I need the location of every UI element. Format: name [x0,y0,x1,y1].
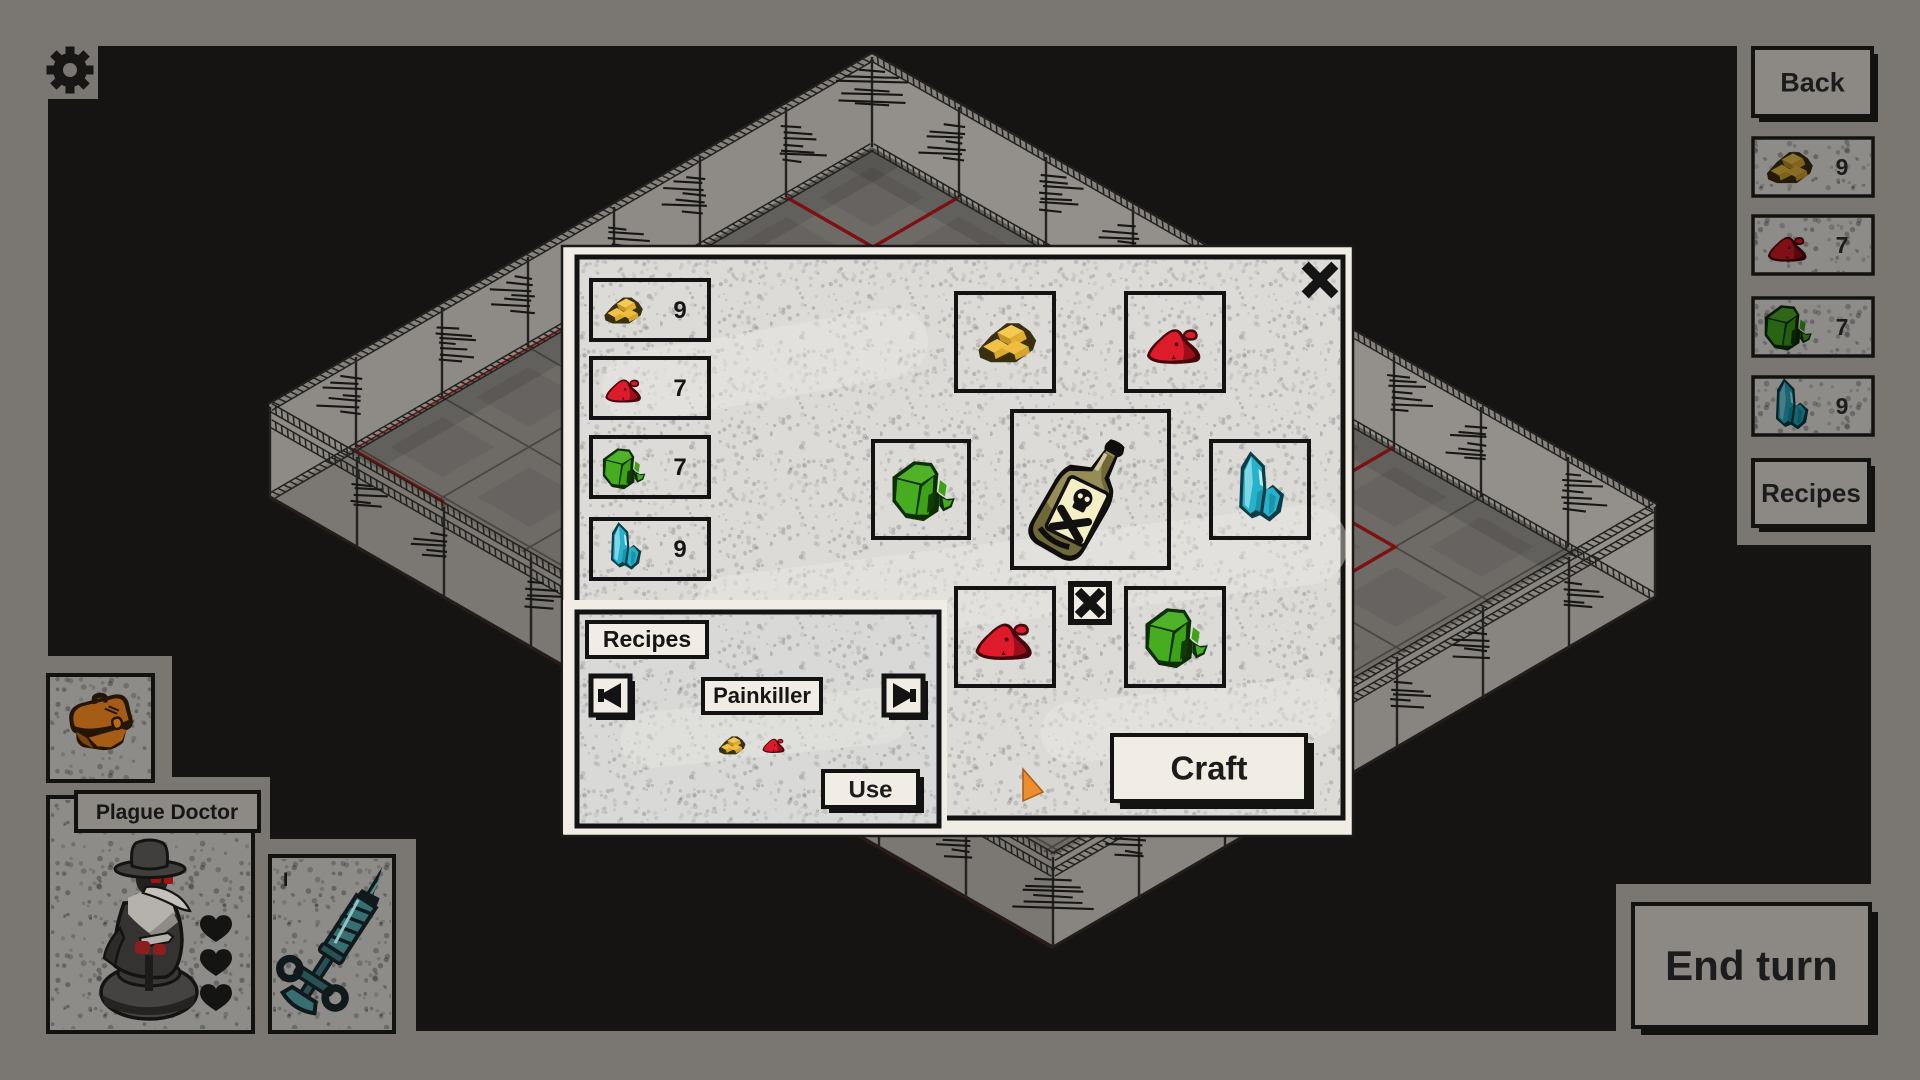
svg-text:9: 9 [1836,393,1849,419]
svg-text:Craft: Craft [1170,750,1247,787]
svg-text:Painkiller: Painkiller [713,683,811,708]
svg-text:I: I [283,870,288,891]
svg-text:Plague Doctor: Plague Doctor [96,801,238,824]
svg-text:Back: Back [1780,67,1846,97]
svg-text:9: 9 [1836,154,1849,180]
svg-text:End turn: End turn [1665,942,1838,989]
svg-text:Recipes: Recipes [1761,478,1861,508]
svg-text:7: 7 [673,454,686,481]
svg-text:9: 9 [673,297,686,324]
svg-text:Recipes: Recipes [603,626,691,652]
svg-text:7: 7 [1836,314,1849,340]
svg-text:9: 9 [673,536,686,563]
svg-text:7: 7 [1836,232,1849,258]
svg-text:7: 7 [673,375,686,402]
svg-text:Use: Use [848,776,892,803]
